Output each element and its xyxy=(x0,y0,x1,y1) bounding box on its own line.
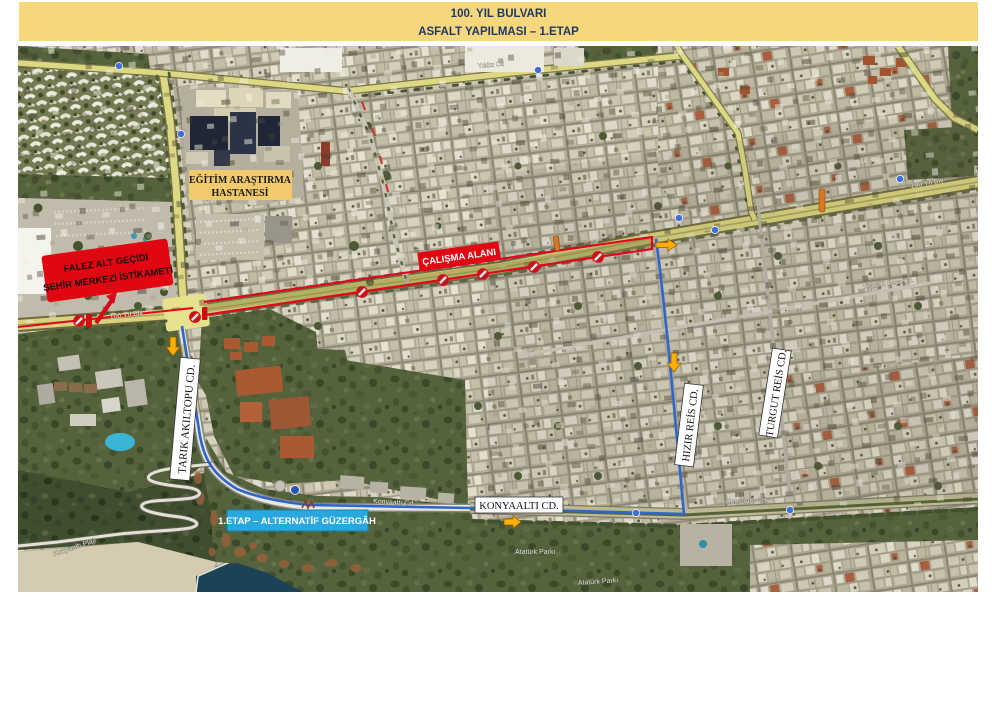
svg-text:1.ETAP – ALTERNATİF GÜZERGÂH: 1.ETAP – ALTERNATİF GÜZERGÂH xyxy=(218,515,376,527)
svg-text:KONYAALTI CD.: KONYAALTI CD. xyxy=(479,501,559,512)
svg-text:Atatürk Parkı: Atatürk Parkı xyxy=(515,549,556,556)
svg-text:Konyaaltı Cd.: Konyaaltı Cd. xyxy=(726,498,768,506)
svg-text:HASTANESİ: HASTANESİ xyxy=(211,187,268,199)
svg-text:EĞİTİM ARAŞTIRMA: EĞİTİM ARAŞTIRMA xyxy=(189,173,292,186)
